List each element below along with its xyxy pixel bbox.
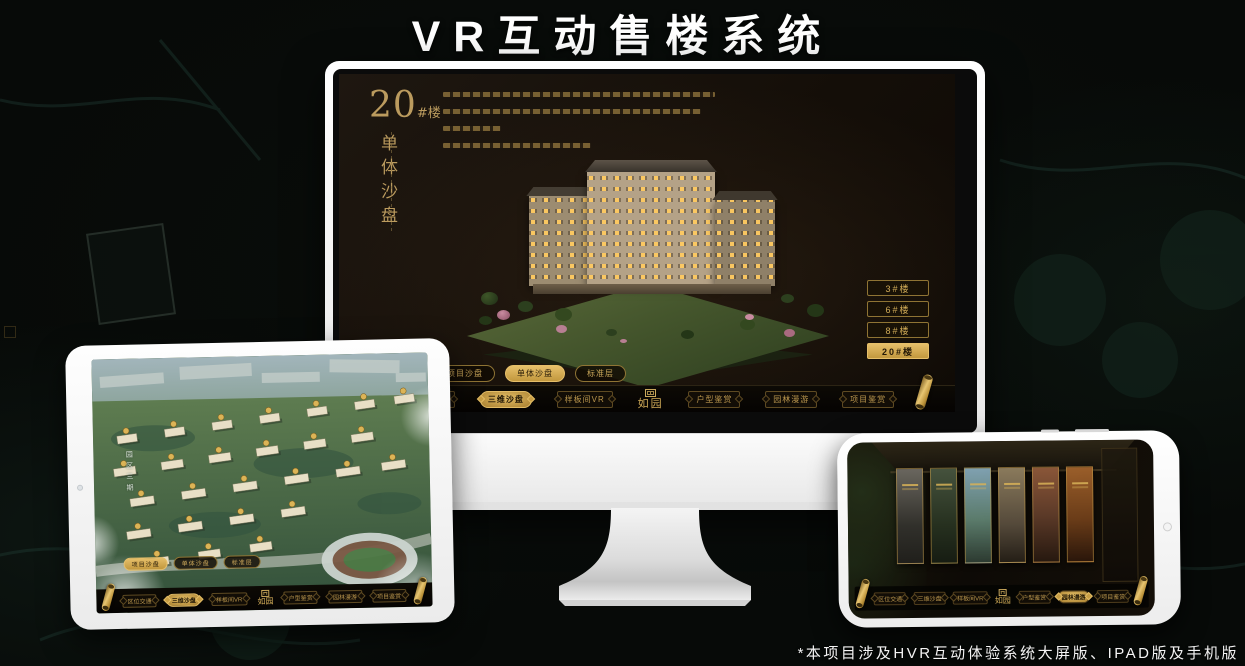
phone-nav-3d-sandtable[interactable]: 三维沙盘 — [914, 591, 946, 604]
floor-button-8[interactable]: 8#楼 — [867, 322, 929, 338]
phone-nav-location-traffic[interactable]: 区位交通 — [874, 592, 906, 605]
tree-cluster-green — [481, 292, 498, 305]
scroll-panel-gallery — [896, 466, 1094, 564]
phone-volume-button — [1075, 429, 1109, 432]
tree-cluster-pink — [497, 310, 510, 320]
tablet-nav-garden-roam[interactable]: 园林漫游 — [328, 589, 362, 603]
tablet-tab-project-sandtable[interactable]: 项目沙盘 — [124, 557, 168, 571]
phone-nav-garden-roam[interactable]: 园林漫游 — [1058, 590, 1090, 603]
phone-nav-showroom-vr[interactable]: 样板间VR — [953, 591, 987, 604]
tablet-nav-3d-sandtable[interactable]: 三维沙盘 — [167, 593, 201, 607]
nav-item-unit-plans[interactable]: 户型鉴赏 — [688, 391, 740, 408]
nav-item-showroom-vr[interactable]: 样板间VR — [557, 391, 613, 408]
tab-single-sandtable[interactable]: 单体沙盘 — [505, 365, 565, 382]
phone-brand-logo[interactable]: 如园 — [995, 589, 1011, 605]
sandtable-mode-tabs: 项目沙盘 单体沙盘 标准层 — [435, 365, 626, 382]
nav-item-garden-roam[interactable]: 园林漫游 — [765, 391, 817, 408]
building-render[interactable] — [467, 132, 837, 400]
page-title: VR互动售楼系统 — [0, 2, 1245, 64]
brand-logo[interactable]: 如园 — [638, 389, 664, 410]
tablet-screen: 园区三期 项目沙盘 单体沙盘 标准层 区位交通 三维沙盘 样板间VR 如园 户型… — [91, 352, 432, 613]
gallery-doorway — [1101, 448, 1138, 582]
phone-nav-project-gallery[interactable]: 项目鉴赏 — [1097, 589, 1129, 602]
tab-standard-floor[interactable]: 标准层 — [575, 365, 626, 382]
phone-screen: 区位交通 三维沙盘 样板间VR 如园 户型鉴赏 园林漫游 项目鉴赏 — [847, 439, 1155, 618]
floor-button-group: 3#楼 6#楼 8#楼 20#楼 — [867, 280, 929, 359]
tablet-nav-showroom-vr[interactable]: 样板间VR — [211, 592, 248, 606]
description-line — [443, 126, 501, 131]
footnote-caption: *本项目涉及HVR互动体验系统大屏版、IPAD版及手机版 — [798, 642, 1239, 663]
aerial-sandtable-map[interactable] — [91, 352, 432, 613]
monitor-stand — [545, 508, 765, 612]
tablet-nav-project-gallery[interactable]: 项目鉴赏 — [372, 588, 406, 602]
phone-brand-logo-text: 如园 — [995, 597, 1011, 605]
gallery-panel-building-facade[interactable] — [998, 467, 1026, 563]
unit-subtitle: 单体沙盘 — [375, 134, 400, 230]
seal-icon — [999, 589, 1007, 595]
nav-item-project-gallery[interactable]: 项目鉴赏 — [842, 391, 894, 408]
tablet-tab-standard-floor[interactable]: 标准层 — [224, 555, 261, 569]
gallery-panel-autumn-court[interactable] — [1032, 466, 1060, 562]
promo-stage: VR互动售楼系统 20#楼 单体沙盘 — [0, 0, 1245, 666]
phone-home-indicator — [1163, 522, 1172, 531]
seal-icon — [645, 389, 655, 398]
tablet-device: 园区三期 项目沙盘 单体沙盘 标准层 区位交通 三维沙盘 样板间VR 如园 户型… — [65, 338, 455, 630]
tablet-brand-logo-text: 如园 — [258, 597, 274, 605]
phone-device: 区位交通 三维沙盘 样板间VR 如园 户型鉴赏 园林漫游 项目鉴赏 — [837, 430, 1181, 628]
road-label: 园区三期 — [123, 451, 134, 495]
unit-title-block: 20#楼 单体沙盘 — [369, 88, 441, 230]
gallery-panel-interior[interactable] — [1066, 466, 1094, 562]
building-core — [587, 172, 715, 286]
building-left-wing — [529, 196, 591, 286]
brand-logo-text: 如园 — [638, 398, 664, 409]
residential-building — [529, 158, 775, 298]
seal-icon — [262, 590, 270, 597]
gallery-panel-architecture[interactable] — [896, 468, 924, 564]
description-line — [443, 109, 701, 114]
floor-button-20[interactable]: 20#楼 — [867, 343, 929, 359]
tablet-nav-location-traffic[interactable]: 区位交通 — [122, 594, 156, 608]
unit-suffix: #楼 — [417, 106, 441, 121]
unit-number: 20#楼 — [369, 88, 441, 124]
nav-item-3d-sandtable[interactable]: 三维沙盘 — [480, 391, 532, 408]
floor-button-3[interactable]: 3#楼 — [867, 280, 929, 296]
building-right-wing — [715, 200, 775, 286]
phone-nav-unit-plans[interactable]: 户型鉴赏 — [1018, 590, 1050, 603]
tablet-brand-logo[interactable]: 如园 — [257, 590, 273, 606]
tablet-tab-single-sandtable[interactable]: 单体沙盘 — [174, 556, 218, 570]
gallery-panel-courtyard[interactable] — [930, 468, 958, 564]
description-line — [443, 92, 715, 97]
background-picture-frame — [86, 223, 176, 325]
background-watermark — [4, 326, 16, 338]
tablet-nav-unit-plans[interactable]: 户型鉴赏 — [284, 590, 318, 604]
tablet-camera — [77, 485, 83, 491]
floor-button-6[interactable]: 6#楼 — [867, 301, 929, 317]
gallery-panel-garden-view[interactable] — [964, 467, 992, 563]
building-base — [533, 284, 771, 294]
phone-bottom-nav: 区位交通 三维沙盘 样板间VR 如园 户型鉴赏 园林漫游 项目鉴赏 — [855, 584, 1149, 611]
scroll-menu-icon[interactable] — [914, 373, 934, 410]
phone-mute-switch — [1041, 429, 1059, 432]
unit-divider — [391, 132, 392, 232]
